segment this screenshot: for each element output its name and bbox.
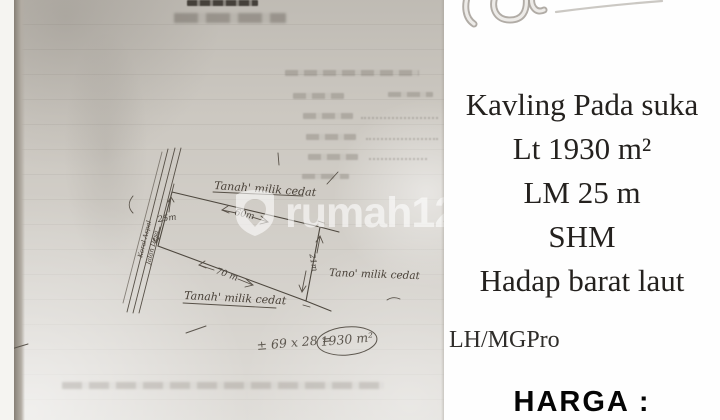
ghost-text-row <box>293 93 344 99</box>
frontage: LM 25 m <box>444 171 720 215</box>
ghost-dotted-line <box>366 138 438 140</box>
ghost-dotted-line <box>361 117 438 119</box>
ghost-text-row <box>308 154 358 160</box>
rumah123-watermark: rumah123 <box>232 189 444 237</box>
ghost-dotted-line <box>369 158 427 160</box>
photo-edge <box>441 0 444 420</box>
agent-code: LH/MGPro <box>449 327 560 354</box>
cutoff-script-decoration <box>444 0 720 40</box>
ghost-text-row <box>306 134 356 140</box>
listing-flyer: 25m 60m 70 m 21m Tanah' milik cedat Tano… <box>0 0 720 420</box>
ghost-text-row <box>388 92 433 97</box>
site-plan-photo: 25m 60m 70 m 21m Tanah' milik cedat Tano… <box>14 0 444 420</box>
ghost-text-row <box>302 174 349 179</box>
ghost-text-row <box>303 113 353 119</box>
price-label: HARGA : <box>444 386 720 419</box>
listing-info-panel: Kavling Pada suka Lt 1930 m² LM 25 m SHM… <box>444 0 720 420</box>
land-area: Lt 1930 m² <box>444 127 720 171</box>
listing-details: Kavling Pada suka Lt 1930 m² LM 25 m SHM… <box>444 83 720 303</box>
paper-edge-shadow <box>14 0 25 420</box>
certificate-type: SHM <box>444 215 720 259</box>
ghost-text-row <box>62 382 384 389</box>
orientation: Hadap barat laut <box>444 259 720 303</box>
watermark-text: rumah123 <box>285 192 444 235</box>
ghost-text-row <box>285 70 419 76</box>
rumah123-logo-icon <box>232 189 278 237</box>
cutoff-header-fragment <box>187 0 258 6</box>
ghost-heading <box>174 13 286 23</box>
listing-title: Kavling Pada suka <box>444 83 720 127</box>
